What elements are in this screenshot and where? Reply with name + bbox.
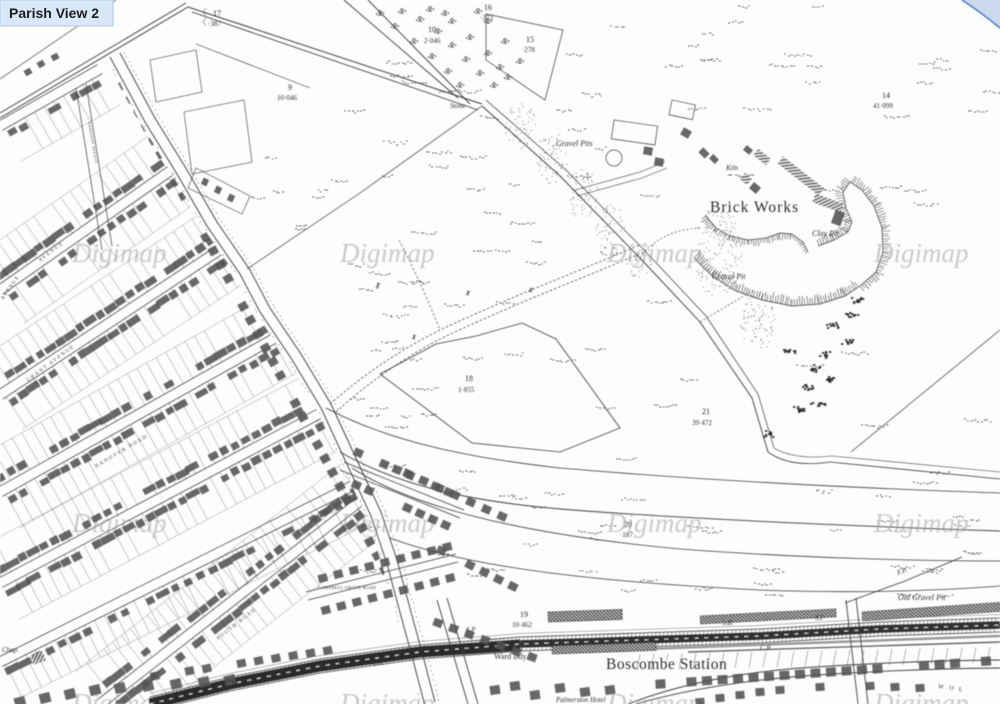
svg-text:Gravel Pit: Gravel Pit: [712, 272, 746, 281]
svg-text:Clay Pit: Clay Pit: [812, 229, 839, 238]
svg-text:Digimap: Digimap: [873, 508, 969, 538]
svg-text:·387: ·387: [208, 20, 221, 28]
svg-text:1·855: 1·855: [458, 386, 475, 394]
svg-text:10: 10: [428, 25, 436, 34]
svg-text:Gravel Pits: Gravel Pits: [556, 139, 593, 148]
svg-text:21: 21: [702, 407, 710, 416]
svg-text:S.P: S.P: [815, 614, 825, 622]
svg-text:Digimap: Digimap: [339, 238, 435, 268]
svg-text:39·472: 39·472: [692, 419, 712, 427]
svg-text:Parish View 2: Parish View 2: [9, 5, 99, 21]
svg-text:Digimap: Digimap: [339, 688, 435, 704]
svg-text:Digimap: Digimap: [606, 688, 702, 704]
svg-text:·278: ·278: [522, 46, 535, 54]
svg-text:Palmerston Hotel: Palmerston Hotel: [555, 696, 606, 704]
svg-text:CAMPBELL GROVE ROAD: CAMPBELL GROVE ROAD: [318, 585, 376, 590]
svg-text:19: 19: [520, 610, 528, 619]
svg-text:·273: ·273: [480, 14, 493, 22]
svg-text:41·099: 41·099: [873, 102, 893, 110]
svg-text:F.F.: F.F.: [895, 566, 909, 577]
svg-text:9: 9: [288, 83, 292, 92]
svg-text:17: 17: [213, 9, 221, 18]
svg-text:Chap.: Chap.: [2, 646, 19, 654]
svg-text:2·046: 2·046: [424, 37, 441, 45]
svg-text:HARRISON AVENUE: HARRISON AVENUE: [87, 121, 98, 164]
svg-text:14: 14: [882, 91, 890, 100]
svg-text:10·046: 10·046: [277, 94, 297, 102]
svg-text:20: 20: [624, 520, 632, 529]
svg-text:Digimap: Digimap: [873, 238, 969, 268]
svg-text:C.R.: C.R.: [372, 659, 385, 667]
svg-text:16: 16: [484, 3, 492, 12]
svg-text:Kiln: Kiln: [725, 164, 739, 172]
svg-text:C.R.: C.R.: [760, 644, 773, 652]
svg-text:Stone: Stone: [450, 102, 466, 110]
svg-text:10·462: 10·462: [512, 621, 532, 629]
svg-text:S.B.: S.B.: [722, 619, 734, 627]
svg-text:18: 18: [465, 374, 473, 383]
svg-text:Brick Works: Brick Works: [710, 199, 799, 216]
svg-text:·187: ·187: [620, 531, 633, 539]
svg-text:Digimap: Digimap: [71, 238, 167, 268]
svg-text:15: 15: [526, 35, 534, 44]
svg-text:Old Gravel Pit: Old Gravel Pit: [898, 593, 946, 602]
